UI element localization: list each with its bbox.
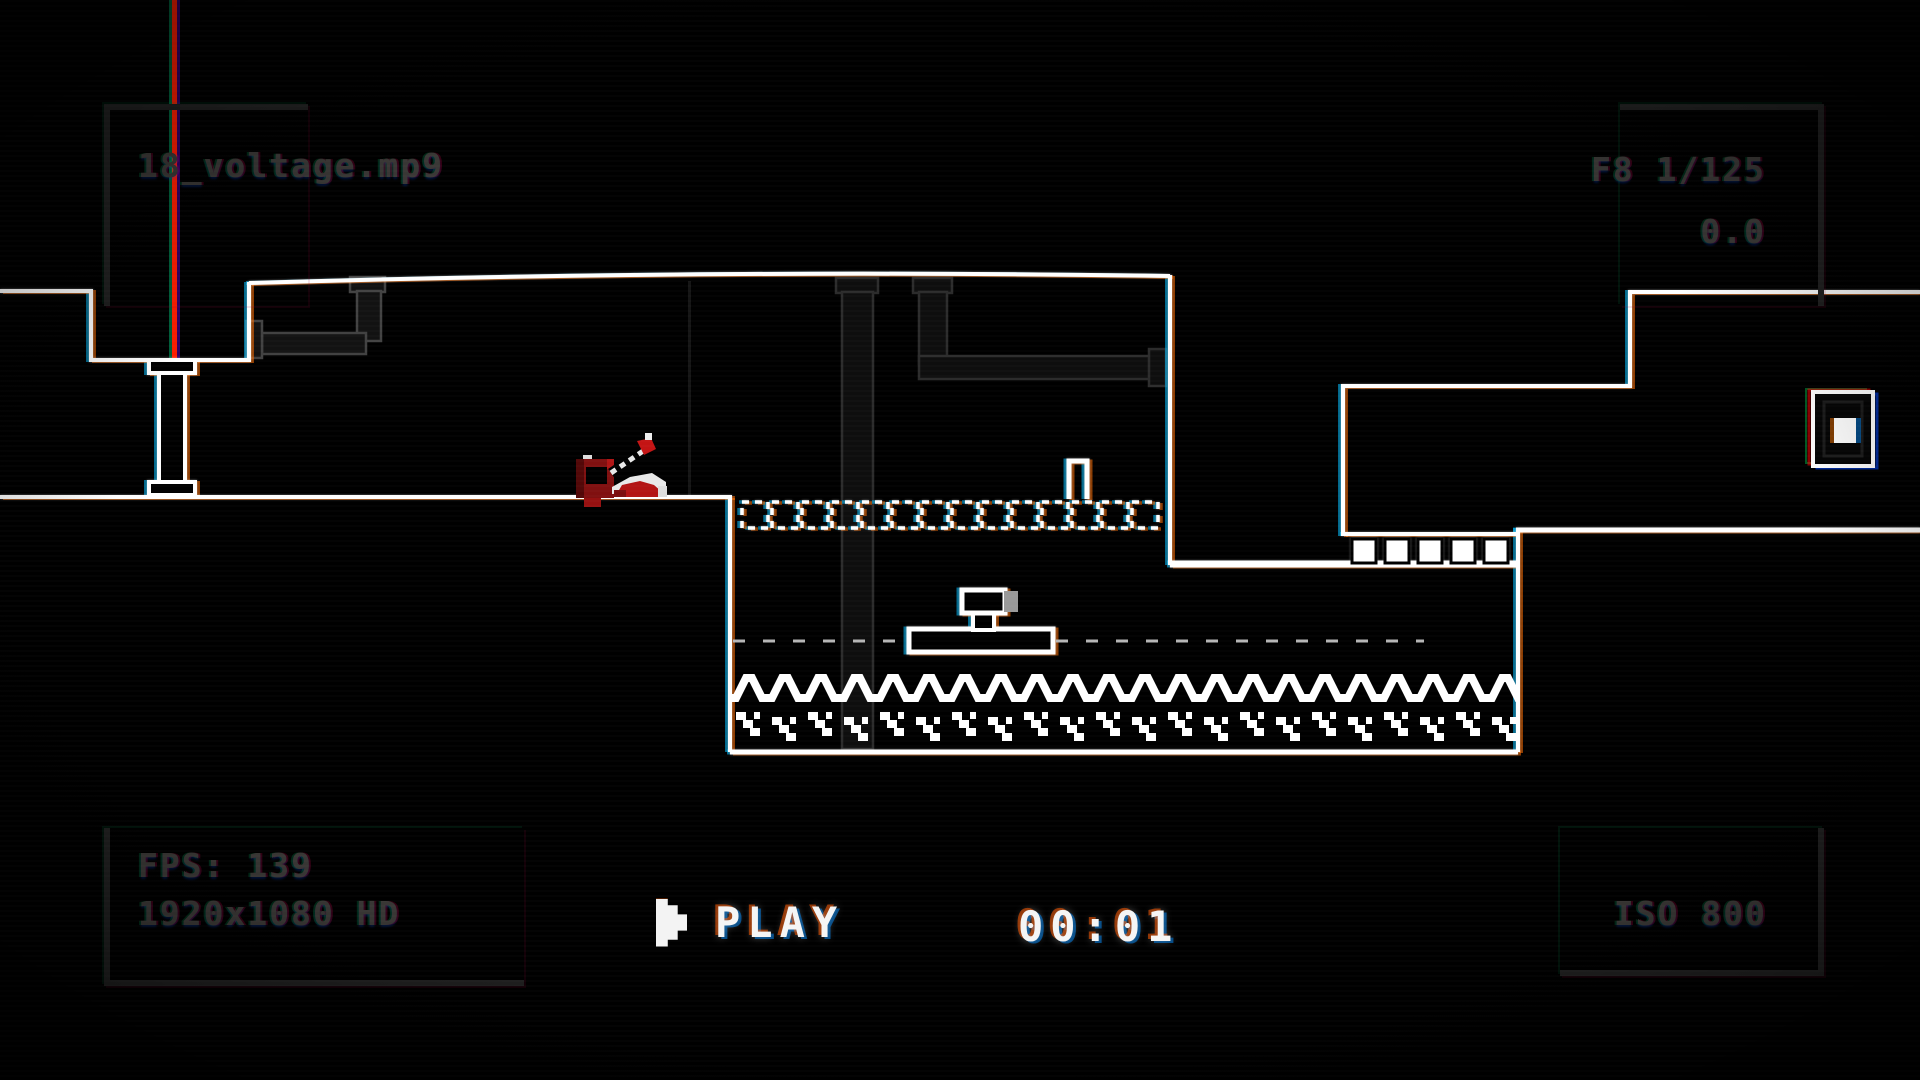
recording-filename: 18_voltage.mp9	[138, 146, 444, 185]
pipe-center-elbow	[913, 278, 1166, 386]
pipe-faint-line	[688, 281, 691, 497]
red-character	[576, 433, 667, 507]
play-icon	[656, 899, 687, 947]
play-label: PLAY	[715, 898, 844, 947]
exit-door-glow	[1834, 418, 1856, 443]
play-indicator[interactable]: PLAY	[656, 898, 844, 947]
platform-button-shadow	[1004, 591, 1018, 612]
iso-label: ISO 800	[1614, 894, 1767, 933]
frame-bracket-top-right	[1620, 104, 1824, 306]
electrified-water-hazard	[730, 672, 1518, 752]
resolution-label: 1920x1080 HD	[138, 894, 400, 933]
exposure-value: 0.0	[1700, 212, 1766, 251]
timecode: 00:01	[1018, 902, 1179, 951]
fps-counter: FPS: 139	[138, 846, 313, 885]
frame-bracket-top-left	[104, 104, 308, 306]
game-screen: 18_voltage.mp9 F8 1/125 0.0 FPS: 139 192…	[0, 0, 1920, 1080]
exit-door	[1806, 389, 1877, 468]
camera-settings: F8 1/125	[1591, 150, 1766, 189]
